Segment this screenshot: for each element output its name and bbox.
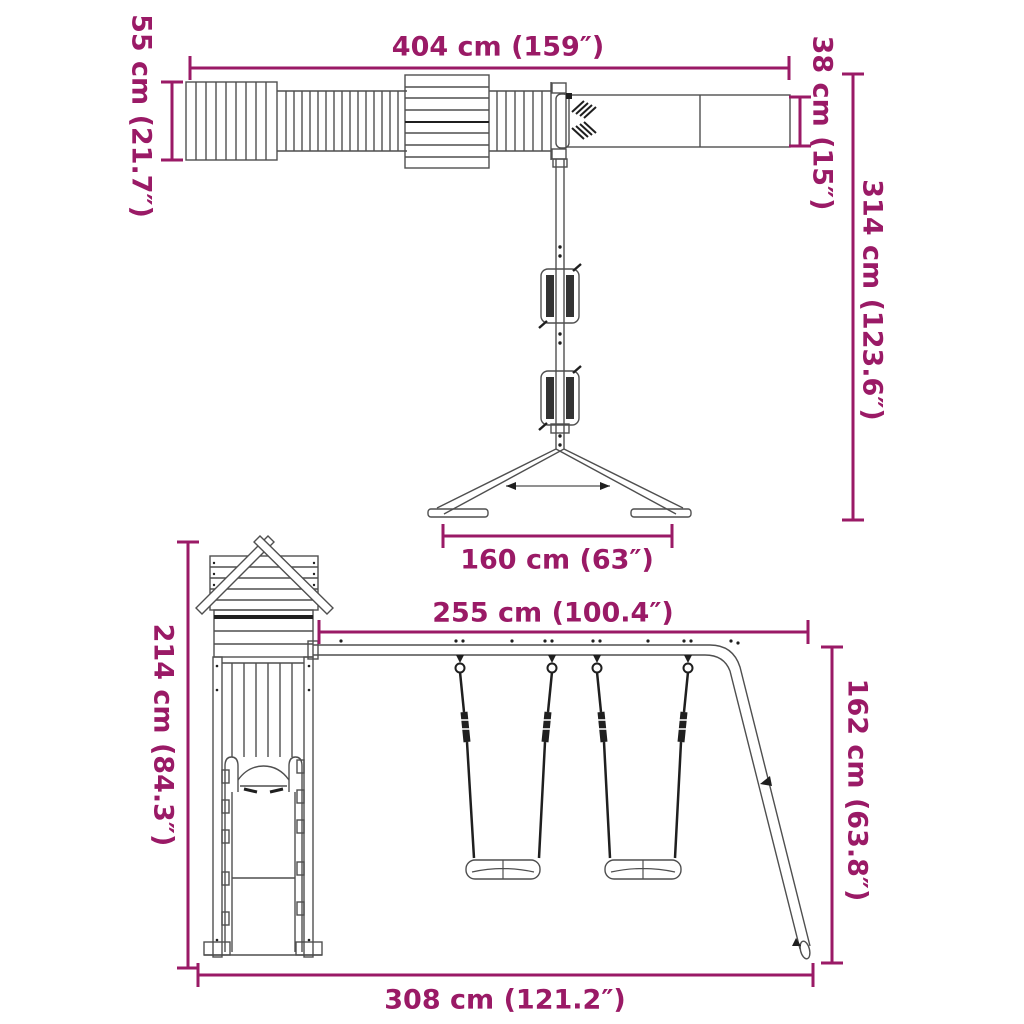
dim-line-base-length-308 [198,963,813,987]
plan-hook-coil-bottom [572,122,596,139]
tower-slide [225,757,302,952]
dim-label-base-length: 308 cm (121.2″) [384,987,625,1014]
tower-slat-wall [222,663,304,757]
plan-swing-hanger-2 [539,366,581,430]
dim-label-overall-length: 404 cm (159″) [392,34,604,61]
dim-label-swing-frame-height: 162 cm (63.8″) [844,679,871,902]
dimension-lines [161,56,864,987]
dim-label-tower-height: 214 cm (84.3″) [150,624,177,847]
swing-2 [593,655,693,879]
dim-label-a-frame-base-width: 160 cm (63″) [460,547,654,574]
plan-pole-bolts [558,245,561,446]
plan-ladder-1 [277,91,407,151]
plan-ladder-2 [489,82,551,160]
plan-a-frame-legs [428,442,691,517]
plan-left-platform [186,82,277,160]
plan-swing-beam [566,93,790,147]
dim-label-platform-depth: 55 cm (21.7″) [128,14,155,218]
swing-1 [456,655,557,879]
tower-upper-wall [214,610,313,657]
dim-label-overall-depth: 314 cm (123.6″) [859,179,886,420]
swing-beam-and-leg [308,639,812,959]
dim-line-tower-height-214 [177,542,199,968]
beam-mount-bolts [339,639,739,644]
tower-roof-rafters [196,536,333,614]
top-view-structure [186,75,790,517]
dim-line-frame-height-162 [821,647,843,963]
plan-hook-coil-top [572,101,596,118]
tower-post-cleats [222,760,304,925]
dim-label-swing-beam-length: 255 cm (100.4″) [432,600,673,627]
dimension-diagram-page: 404 cm (159″) 55 cm (21.7″) 38 cm (15″) … [0,0,1024,1024]
plan-middle-platform [405,75,489,168]
dim-line-platform-depth-55 [161,82,183,160]
plan-swing-hanger-1 [539,264,581,328]
dim-label-swing-beam-width: 38 cm (15″) [809,36,836,211]
